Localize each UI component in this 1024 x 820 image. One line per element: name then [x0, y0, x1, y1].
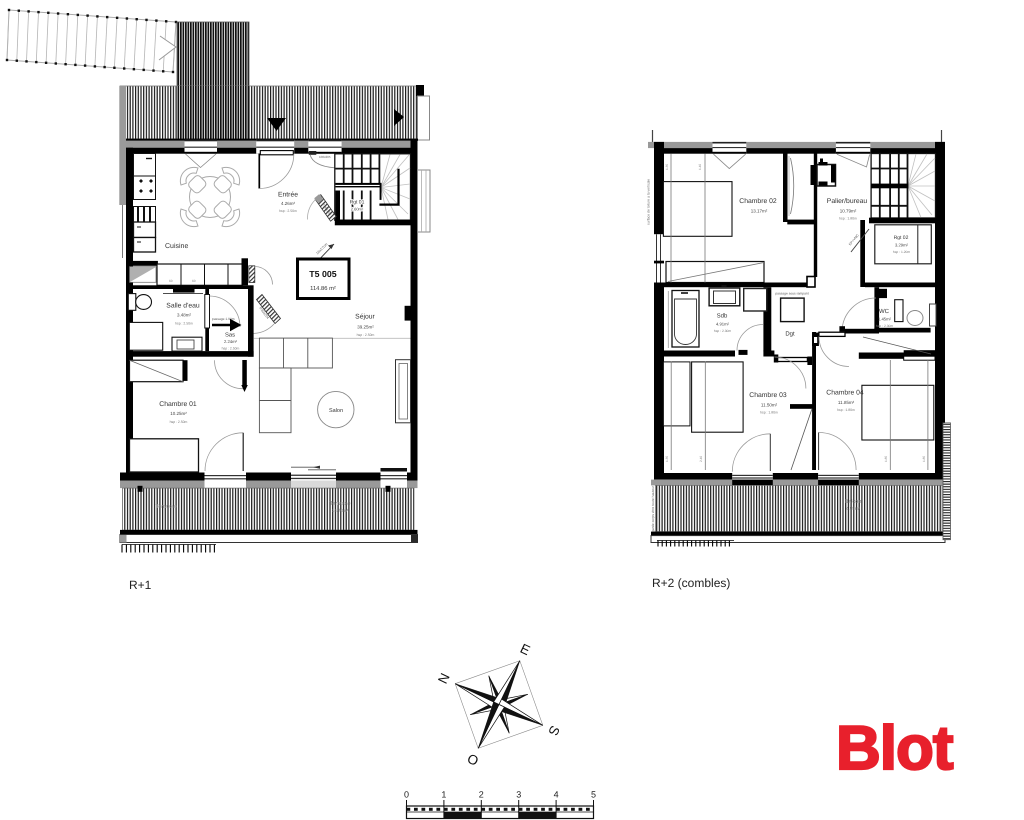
svg-text:Rgt 01: Rgt 01	[350, 200, 365, 206]
svg-text:2.60m²: 2.60m²	[351, 207, 364, 212]
svg-text:10.79m²: 10.79m²	[840, 209, 857, 214]
svg-text:hsp : 2.50m: hsp : 2.50m	[357, 333, 375, 337]
svg-text:hsp : 2.50m: hsp : 2.50m	[222, 347, 240, 351]
svg-text:hsp : 1.20m: hsp : 1.20m	[893, 250, 910, 254]
svg-text:3.29m²: 3.29m²	[895, 243, 909, 248]
svg-text:Balcon: Balcon	[845, 499, 862, 505]
svg-text:hsp : 2.30m: hsp : 2.30m	[714, 329, 731, 333]
svg-text:3: 3	[516, 790, 521, 800]
svg-text:Cuisine: Cuisine	[165, 242, 188, 250]
svg-text:2.24m²: 2.24m²	[224, 339, 238, 344]
svg-text:Chambre 01: Chambre 01	[159, 401, 197, 408]
svg-text:hsp : 2.50m: hsp : 2.50m	[279, 209, 297, 213]
svg-text:hsp : 2.50m: hsp : 2.50m	[170, 420, 188, 424]
svg-text:hsp : 2.50m: hsp : 2.50m	[175, 322, 193, 326]
svg-text:5: 5	[591, 790, 596, 800]
svg-text:Chambre 02: Chambre 02	[739, 198, 777, 205]
svg-text:Chambre 03: Chambre 03	[749, 392, 787, 399]
svg-text:T5 005: T5 005	[309, 269, 336, 279]
svg-text:hsp : 1.80m: hsp : 1.80m	[839, 217, 857, 221]
svg-text:11.50m²: 11.50m²	[761, 403, 778, 408]
svg-text:1.85: 1.85	[922, 456, 926, 462]
svg-text:1.85: 1.85	[884, 456, 888, 462]
svg-text:surface de toiture a la vertic: surface de toiture a la verticale	[647, 179, 651, 225]
svg-text:Terrasse: Terrasse	[329, 501, 350, 507]
svg-text:Entrée: Entrée	[278, 192, 298, 199]
svg-text:39.25m²: 39.25m²	[357, 325, 374, 330]
svg-text:Blot: Blot	[836, 714, 953, 783]
svg-text:60: 60	[192, 279, 196, 283]
svg-text:60: 60	[169, 279, 173, 283]
svg-text:Rgt 02: Rgt 02	[894, 235, 909, 241]
svg-text:Salon: Salon	[329, 408, 343, 414]
svg-text:13.17m²: 13.17m²	[751, 209, 768, 214]
svg-text:1: 1	[441, 790, 446, 800]
svg-text:1.40: 1.40	[698, 164, 702, 170]
svg-text:R+1: R+1	[129, 578, 152, 592]
svg-text:R+2 (combles): R+2 (combles)	[652, 576, 730, 590]
svg-text:garde corps vitre toute hauteu: garde corps vitre toute hauteur	[651, 485, 655, 532]
svg-text:4: 4	[554, 790, 559, 800]
svg-text:14.70m²: 14.70m²	[332, 508, 349, 513]
svg-text:Sdb: Sdb	[717, 313, 728, 320]
svg-text:hsp : 1.80m: hsp : 1.80m	[837, 408, 855, 412]
svg-text:4.26m²: 4.26m²	[281, 201, 296, 206]
svg-text:Dgt: Dgt	[785, 331, 795, 338]
svg-text:10.25m²: 10.25m²	[170, 411, 187, 416]
svg-text:Séjour: Séjour	[355, 314, 375, 321]
svg-text:4.95m²: 4.95m²	[846, 506, 861, 511]
svg-text:100x205: 100x205	[319, 155, 331, 159]
svg-text:Sas: Sas	[225, 332, 235, 339]
svg-text:3.48m²: 3.48m²	[177, 313, 192, 318]
svg-text:hsp : 2.30m: hsp : 2.30m	[876, 324, 893, 328]
svg-text:passage sous rampant: passage sous rampant	[775, 292, 808, 296]
svg-text:Terrasse: Terrasse	[155, 504, 176, 510]
svg-text:4.91m²: 4.91m²	[716, 322, 730, 327]
svg-text:1.35: 1.35	[665, 164, 669, 170]
svg-text:2.40: 2.40	[699, 456, 703, 462]
svg-text:1.35: 1.35	[665, 456, 669, 462]
svg-text:Chambre 04: Chambre 04	[826, 390, 864, 397]
svg-text:11.85m²: 11.85m²	[838, 400, 855, 405]
svg-text:WC: WC	[879, 308, 890, 315]
svg-text:0: 0	[404, 790, 409, 800]
svg-text:114.86 m²: 114.86 m²	[310, 285, 336, 292]
svg-text:1.45m²: 1.45m²	[878, 317, 892, 322]
svg-text:Salle d'eau: Salle d'eau	[166, 303, 200, 310]
svg-text:Palier/bureau: Palier/bureau	[827, 198, 868, 205]
svg-text:2: 2	[479, 790, 484, 800]
svg-text:hsp : 1.80m: hsp : 1.80m	[760, 411, 778, 415]
